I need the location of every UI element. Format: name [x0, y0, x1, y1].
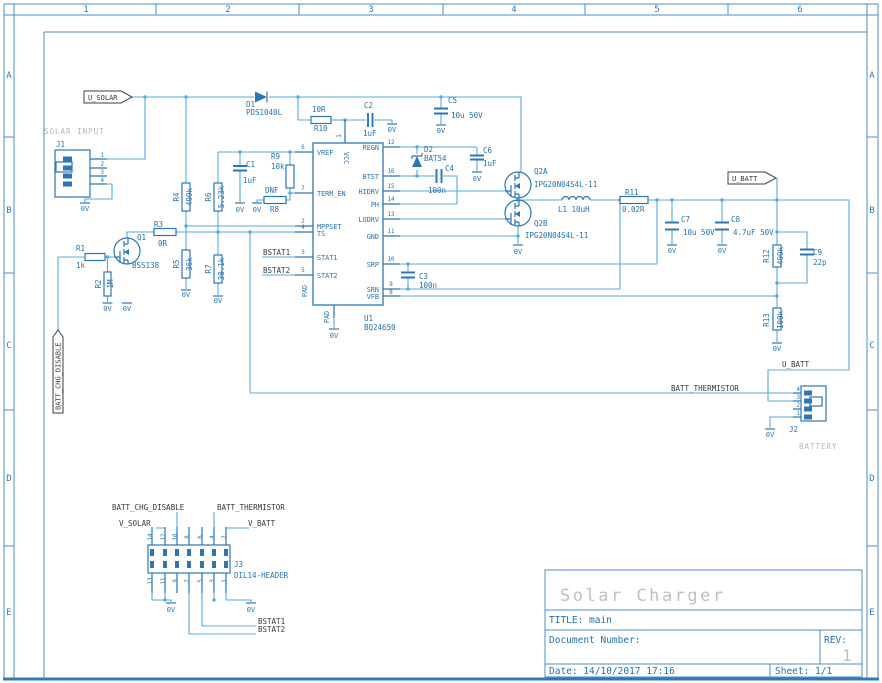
frame-row-left-E: E: [6, 608, 11, 618]
val-r9: 10k: [271, 162, 285, 171]
pinnum-14: 14: [388, 197, 395, 203]
net-v-batt: V_BATT: [248, 519, 276, 528]
pinnum-7: 7: [301, 186, 305, 192]
val-r6: 5.23k: [217, 185, 226, 208]
tb-rev: 1: [842, 646, 852, 665]
net-bstat2: BSTAT2: [263, 266, 290, 275]
val-c6: 1uF: [483, 159, 497, 168]
ref-c5: C5: [448, 96, 457, 105]
val-c7: 10u 50V: [683, 228, 715, 237]
pinnum-12: 12: [388, 140, 395, 146]
val-q1: BSS138: [132, 261, 160, 270]
j2-pin-1: 1: [797, 411, 801, 417]
val-r10: 10R: [312, 105, 326, 114]
frame-row-left-B: B: [6, 206, 11, 216]
ref-c9: C9: [813, 248, 822, 257]
pwr-0v-j3a: 0V: [167, 606, 176, 614]
pwr-0v-j1: 0V: [81, 205, 90, 213]
title-block-labels: Solar ChargerTITLE:mainDocument Number:R…: [549, 586, 852, 677]
j3-pin-7: 7: [185, 579, 191, 583]
ref-j2: J2: [789, 425, 798, 434]
pwr-0v-r8: 0V: [253, 206, 262, 214]
ref-r9: R9: [271, 152, 280, 161]
resistor-r8: [264, 197, 286, 204]
val-r5: 36k: [185, 257, 194, 271]
ic-pin-term-en: TERM_EN: [317, 190, 346, 198]
tb-date: Date: 14/10/2017 17:16: [549, 666, 675, 677]
val-c3: 100n: [419, 281, 437, 290]
ic-pin-hidrv: HIDRV: [359, 188, 379, 196]
ref-r1: R1: [76, 244, 85, 253]
frame-row-left-D: D: [6, 474, 11, 484]
ref-c3: C3: [419, 272, 428, 281]
val-r2: 1M: [106, 279, 115, 289]
ref-r11: R11: [625, 188, 639, 197]
j1-pin-3: 3: [101, 170, 105, 176]
tb-sheet: Sheet: 1/1: [775, 666, 832, 677]
ref-r3: R3: [154, 220, 163, 229]
pwr-0v-c6: 0V: [473, 175, 482, 183]
pinnum-10: 10: [388, 257, 395, 263]
resistor-r10: [311, 117, 331, 124]
ref-r4: R4: [172, 192, 181, 202]
ref-q1: Q1: [137, 233, 146, 242]
ref-c1: C1: [246, 160, 255, 169]
val-u1: BQ24650: [364, 323, 396, 332]
j2-pin-3: 3: [797, 395, 801, 401]
pwr-0v-r13: 0V: [773, 345, 782, 353]
net-batt-thermistor: BATT_THERMISTOR: [671, 384, 739, 393]
pwr-0v-pad: 0V: [330, 332, 339, 340]
ref-q2b: Q2B: [534, 219, 548, 228]
val-c1: 1uF: [243, 176, 257, 185]
val-c4: 100n: [428, 186, 446, 195]
pwr-0v-c8: 0V: [718, 247, 727, 255]
ref-r13: R13: [762, 313, 771, 327]
capacitor-c4: [437, 169, 442, 183]
val-q2b: IPG20N04S4L-11: [525, 231, 588, 240]
frame-col-5: 5: [654, 5, 659, 15]
val-d2: BAT54: [424, 154, 447, 163]
j3-pin-1: 1: [222, 579, 228, 583]
ic-pin-vfb: VFB: [367, 293, 379, 301]
ref-c4: C4: [445, 164, 455, 173]
tb-title-label: TITLE:: [549, 615, 583, 626]
ref-r6: R6: [204, 192, 213, 202]
frame-row-right-D: D: [869, 474, 874, 484]
tb-project: Solar Charger: [560, 586, 726, 606]
capacitor-c7: [665, 223, 679, 230]
ref-c8: C8: [731, 215, 741, 224]
resistor-r9: [286, 165, 294, 188]
net-v-solar: V_SOLAR: [119, 519, 151, 528]
ic-pin-srp: SRP: [367, 261, 379, 269]
j1-pin-4: 4: [101, 178, 105, 184]
pinnum-3: 3: [301, 250, 305, 256]
capacitor-c5: [434, 109, 448, 114]
j3-pin-9: 9: [173, 579, 179, 583]
j3-pin-8: 8: [185, 535, 191, 539]
pinnum-4: 4: [301, 225, 305, 231]
j2-pin-2: 2: [797, 403, 801, 409]
frame-col-3: 3: [368, 5, 373, 15]
j3-pin-2: 2: [222, 535, 228, 539]
pwr-0v-j2: 0V: [766, 431, 775, 439]
ic-pin-pad2: PAD: [323, 311, 331, 323]
ic-pin-ts: TS: [317, 230, 325, 238]
val-r12: 499k: [776, 246, 785, 265]
flag-u-batt: U_BATT: [732, 175, 758, 183]
frame-row-right-C: C: [869, 341, 874, 351]
ic-pin-regn: REGN: [363, 144, 379, 152]
ref-j3: J3: [234, 560, 243, 569]
ref-j1: J1: [56, 140, 65, 149]
pinnum-5: 5: [301, 268, 305, 274]
flag-u-solar: U_SOLAR: [88, 94, 118, 102]
capacitor-c1: [233, 166, 247, 171]
val-j3: DIL14-HEADER: [234, 571, 289, 580]
val-r8: DNF: [265, 186, 279, 195]
frame-row-right-B: B: [869, 206, 874, 216]
transistor-q2a: [505, 172, 531, 198]
pinnum-vcc1: 1: [337, 134, 343, 138]
capacitor-c3: [401, 273, 415, 278]
pwr-0v-c2: 0V: [388, 126, 397, 134]
inductor-l1: [562, 197, 590, 200]
ic-pin-ph: PH: [371, 201, 379, 209]
j1-pin-2: 2: [101, 162, 105, 168]
ic-pin-gnd: GND: [367, 233, 379, 241]
ic-pin-pad: PAD: [301, 285, 309, 297]
capacitor-c2: [368, 113, 373, 127]
val-c9: 22p: [813, 258, 827, 267]
ref-u1: U1: [364, 314, 373, 323]
val-r3: 0R: [158, 239, 168, 248]
ref-r10: R10: [314, 124, 328, 133]
diode-d1: [255, 92, 267, 103]
val-c5: 10u 50V: [451, 111, 483, 120]
ref-c6: C6: [483, 146, 493, 155]
frame-col-4: 4: [511, 5, 516, 15]
resistor-r1: [85, 254, 105, 261]
ref-r2: R2: [94, 279, 103, 288]
pwr-0v-r5: 0V: [182, 291, 191, 299]
pinnum-11: 11: [388, 229, 395, 235]
pwr-0v-r2: 0V: [103, 305, 112, 313]
val-r11: 0.02R: [622, 205, 645, 214]
ic-u1-bq24650: [295, 120, 400, 318]
capacitor-c8: [715, 223, 729, 230]
val-q2a: IPG20N04S4L-11: [534, 180, 597, 189]
schematic-page: U_SOLARU_BATTBATT_CHG_DISABLESOLAR INPUT…: [0, 0, 882, 683]
j3-pin-11: 11: [161, 577, 167, 584]
frame-row-left-A: A: [6, 71, 12, 81]
pwr-0v-q2b: 0V: [514, 248, 523, 256]
ref-r5: R5: [172, 259, 181, 268]
pinnum-6: 6: [301, 145, 305, 151]
frame-col-2: 2: [225, 5, 230, 15]
schematic-canvas: U_SOLARU_BATTBATT_CHG_DISABLESOLAR INPUT…: [0, 0, 882, 683]
tb-doc-label: Document Number:: [549, 635, 641, 646]
transistor-q2b: [505, 200, 531, 226]
capacitor-c6: [470, 156, 484, 160]
j3-pin-14: 14: [148, 533, 154, 540]
label-solar-input: SOLAR INPUT: [44, 127, 105, 136]
tb-title: main: [589, 615, 612, 626]
val-r1: 1k: [76, 261, 86, 270]
ic-pin-stat2: STAT2: [317, 272, 337, 280]
val-r7: 30.1k: [217, 257, 226, 280]
net-batt-chg-disable: BATT_CHG_DISABLE: [112, 503, 185, 512]
pwr-0v-c5: 0V: [437, 127, 446, 135]
frame-row-left-C: C: [6, 341, 11, 351]
j3-pin-4: 4: [210, 535, 216, 539]
connector-j1: [55, 150, 107, 197]
ref-q2a: Q2A: [534, 167, 548, 176]
frame-col-1: 1: [83, 5, 88, 15]
j3-pin-3: 3: [210, 579, 216, 583]
val-c8: 4.7uF 50V: [733, 228, 774, 237]
diode-d2: [412, 153, 422, 167]
ref-r12: R12: [762, 249, 771, 263]
j3-pin-13: 13: [148, 577, 154, 584]
pwr-0v-j3b: 0V: [247, 606, 256, 614]
ic-pin-vref: VREF: [317, 149, 333, 157]
tb-rev-label: REV:: [824, 635, 847, 646]
ic-pin-btst: BTST: [363, 173, 379, 181]
val-c2: 1uF: [363, 129, 377, 138]
frame-row-right-E: E: [869, 608, 874, 618]
j2-pin-4: 4: [797, 387, 801, 393]
pinnum-15: 15: [388, 184, 395, 190]
ref-r8: R8: [270, 205, 280, 214]
pwr-0v-c7: 0V: [668, 247, 677, 255]
ref-d2: D2: [424, 145, 433, 154]
j3-pin-6: 6: [198, 535, 204, 539]
label-battery: BATTERY: [799, 442, 838, 451]
ref-c7: C7: [681, 215, 690, 224]
frame-row-right-A: A: [869, 71, 875, 81]
pinnum-16: 16: [388, 169, 395, 175]
net-bstat1: BSTAT1: [263, 248, 290, 257]
frame-col-6: 6: [797, 5, 802, 15]
ref-c2: C2: [364, 101, 373, 110]
val-r13: 100k: [776, 310, 785, 329]
pwr-0v-c1: 0V: [236, 206, 245, 214]
val-r4: 499k: [185, 187, 194, 206]
j3-pin-12: 12: [161, 534, 167, 541]
pwr-0v-q1: 0V: [123, 305, 132, 313]
pinnum-13: 13: [388, 212, 395, 218]
resistor-r11: [620, 197, 648, 204]
net-bstat2-2: BSTAT2: [258, 625, 285, 634]
ic-pin-stat1: STAT1: [317, 254, 337, 262]
pinnum-9: 9: [389, 282, 393, 288]
val-d1: PDS1040L: [246, 108, 283, 117]
ref-l1: L1 10uH: [558, 205, 590, 214]
j3-pin-5: 5: [198, 579, 204, 583]
ref-r7: R7: [204, 264, 213, 273]
capacitor-c9: [800, 250, 814, 255]
ic-pin-lodrv: LODRV: [359, 216, 379, 224]
j3-pin-10: 10: [173, 533, 179, 540]
net-batt-thermistor-2: BATT_THERMISTOR: [217, 503, 285, 512]
resistor-r3: [154, 229, 176, 236]
pinnum-8: 8: [389, 290, 393, 296]
net-u-batt: U_BATT: [782, 360, 810, 369]
ic-pin-vcc: VCC: [342, 152, 350, 164]
flag-batt-chg-disable: BATT_CHG_DISABLE: [55, 343, 63, 410]
j1-pin-1: 1: [101, 153, 105, 159]
pwr-0v-r7: 0V: [214, 297, 223, 305]
